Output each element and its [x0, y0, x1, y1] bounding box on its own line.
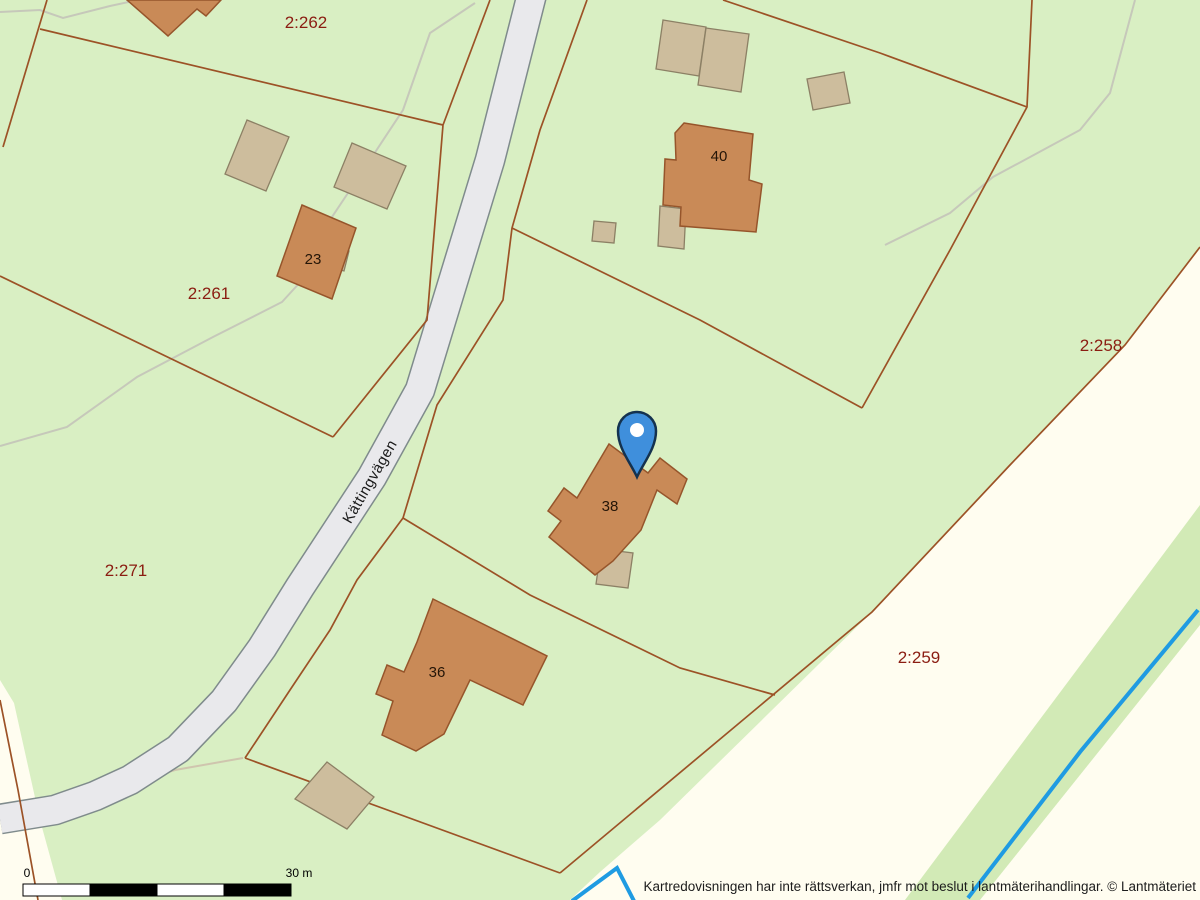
outbuilding: [656, 20, 706, 76]
outbuilding: [807, 72, 850, 110]
scale-bar-segment: [224, 884, 291, 896]
scale-bar-max-label: 30 m: [286, 866, 313, 880]
outbuilding: [698, 28, 749, 92]
attribution-text: Kartredovisningen har inte rättsverkan, …: [644, 879, 1197, 894]
outbuilding: [592, 221, 616, 243]
scale-bar-segment: [90, 884, 157, 896]
parcel-label-2-271: 2:271: [105, 561, 148, 580]
building-38-label: 38: [602, 498, 619, 515]
scale-bar-segment: [157, 884, 224, 896]
building-36-label: 36: [429, 664, 446, 681]
building-23-label: 23: [305, 251, 322, 268]
location-pin-center-dot: [630, 423, 644, 437]
parcel-label-2-262: 2:262: [285, 13, 328, 32]
scale-bar-zero-label: 0: [24, 866, 31, 880]
map-canvas[interactable]: 23 40 38 36 2:262 2:261 2:271 2:258 2:25…: [0, 0, 1200, 900]
building-40-label: 40: [711, 148, 728, 165]
parcel-label-2-259: 2:259: [898, 648, 941, 667]
map-svg: 23 40 38 36 2:262 2:261 2:271 2:258 2:25…: [0, 0, 1200, 900]
parcel-label-2-261: 2:261: [188, 284, 231, 303]
scale-bar-segment: [23, 884, 90, 896]
parcel-label-2-258: 2:258: [1080, 336, 1123, 355]
